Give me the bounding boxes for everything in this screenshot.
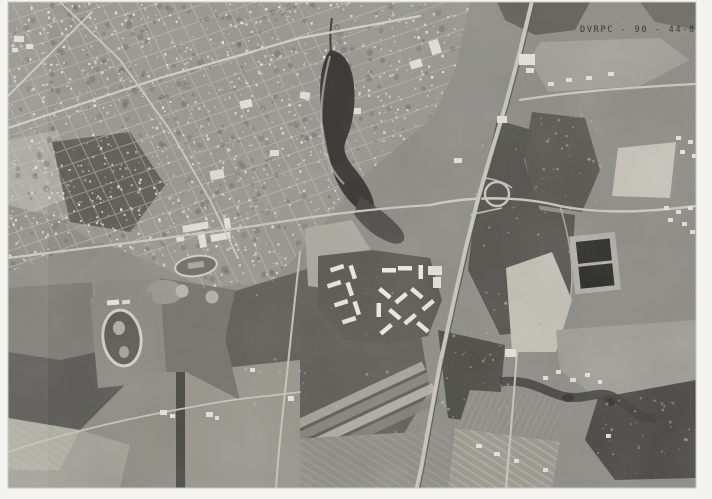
film-grain-light <box>8 2 696 488</box>
photo-content: DVRPC - 90 - 44-8 3 45 <box>0 0 712 499</box>
aerial-photo: DVRPC - 90 - 44-8 3 45 <box>0 0 712 499</box>
photo-index-annotation: DVRPC - 90 - 44-8 3 45 <box>580 25 712 35</box>
photo-print-page: DVRPC - 90 - 44-8 3 45 <box>0 0 712 499</box>
